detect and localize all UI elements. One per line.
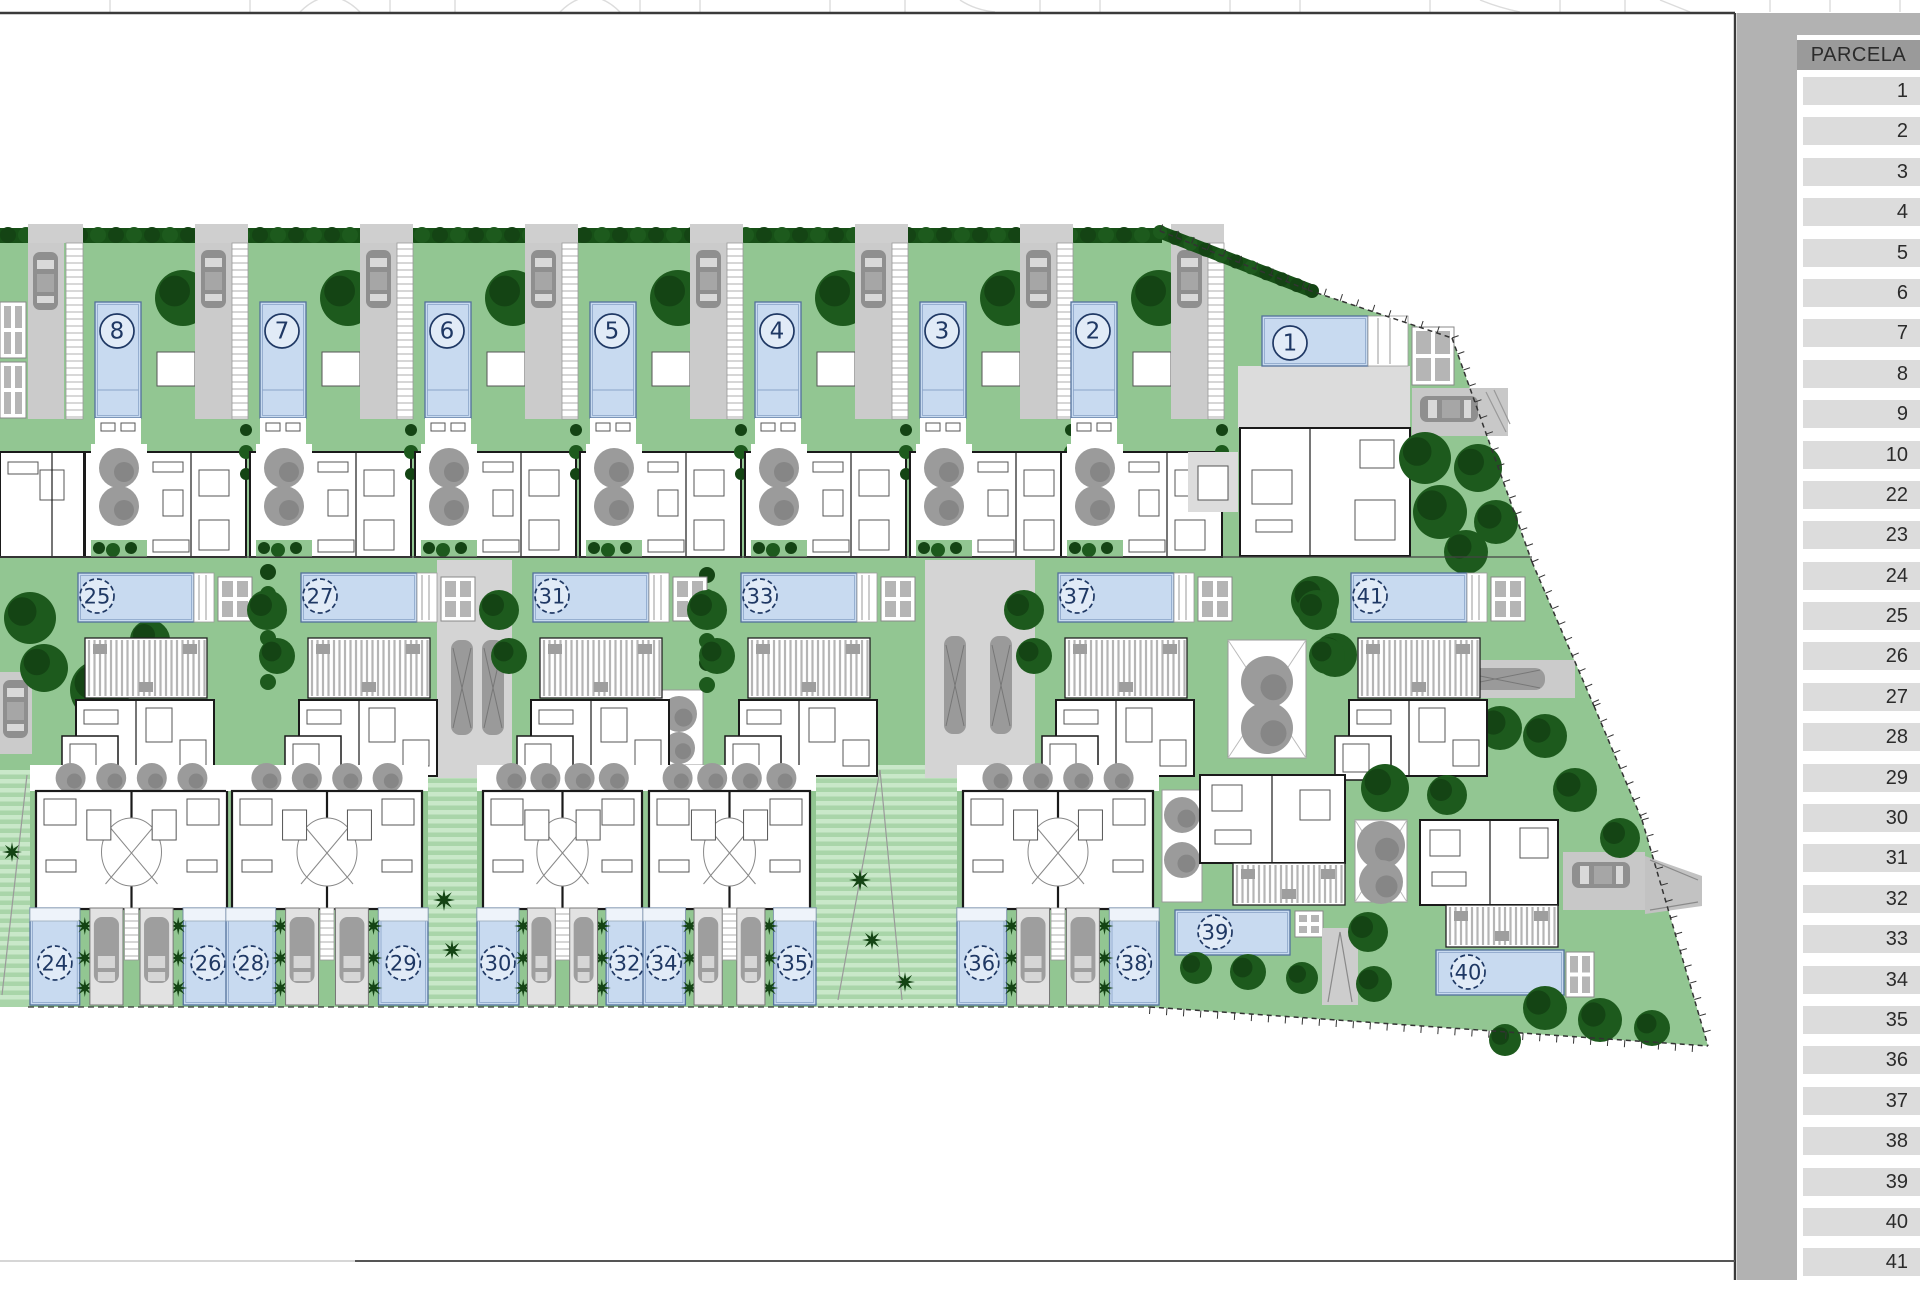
plan-parcel-24[interactable]: 24 bbox=[38, 946, 72, 980]
svg-text:31: 31 bbox=[539, 585, 566, 609]
plan-parcel-33[interactable]: 33 bbox=[743, 579, 777, 613]
plan-parcel-26[interactable]: 26 bbox=[191, 946, 225, 980]
svg-text:38: 38 bbox=[1121, 952, 1148, 976]
svg-text:8: 8 bbox=[110, 319, 125, 345]
parcel-row-41[interactable]: 41 bbox=[1803, 1248, 1920, 1276]
parcel-row-35[interactable]: 35 bbox=[1803, 1006, 1920, 1034]
parcel-row-32[interactable]: 32 bbox=[1803, 885, 1920, 913]
plan-parcel-3[interactable]: 3 bbox=[925, 314, 959, 348]
plan-parcel-40[interactable]: 40 bbox=[1451, 955, 1485, 989]
parcel-row-25[interactable]: 25 bbox=[1803, 602, 1920, 630]
parcel-row-10[interactable]: 10 bbox=[1803, 441, 1920, 469]
svg-text:41: 41 bbox=[1357, 585, 1384, 609]
parcel-row-7[interactable]: 7 bbox=[1803, 319, 1920, 347]
parcel-row-40[interactable]: 40 bbox=[1803, 1208, 1920, 1236]
plan-parcel-36[interactable]: 36 bbox=[965, 946, 999, 980]
svg-text:6: 6 bbox=[440, 319, 455, 345]
plan-parcel-7[interactable]: 7 bbox=[265, 314, 299, 348]
plan-parcel-4[interactable]: 4 bbox=[760, 314, 794, 348]
plan-parcel-34[interactable]: 34 bbox=[647, 946, 681, 980]
plan-parcel-31[interactable]: 31 bbox=[535, 579, 569, 613]
parcel-row-6[interactable]: 6 bbox=[1803, 279, 1920, 307]
parcel-row-22[interactable]: 22 bbox=[1803, 481, 1920, 509]
parcel-table: PARCELA 12345678910222324252627282930313… bbox=[1797, 35, 1920, 1293]
plan-parcel-38[interactable]: 38 bbox=[1117, 946, 1151, 980]
plan-parcel-27[interactable]: 27 bbox=[303, 579, 337, 613]
plan-parcel-28[interactable]: 28 bbox=[234, 946, 268, 980]
svg-text:30: 30 bbox=[485, 952, 512, 976]
svg-text:29: 29 bbox=[390, 952, 417, 976]
parcel-row-5[interactable]: 5 bbox=[1803, 239, 1920, 267]
svg-text:3: 3 bbox=[935, 319, 950, 345]
site-plan-drawing: 8765432125273133374124262829303234353638… bbox=[0, 0, 1920, 1280]
parcel-table-panel: PARCELA 12345678910222324252627282930313… bbox=[1737, 13, 1920, 1280]
plan-parcel-25[interactable]: 25 bbox=[80, 579, 114, 613]
parcel-row-30[interactable]: 30 bbox=[1803, 804, 1920, 832]
plan-parcel-39[interactable]: 39 bbox=[1198, 915, 1232, 949]
parcel-row-33[interactable]: 33 bbox=[1803, 925, 1920, 953]
plan-parcel-37[interactable]: 37 bbox=[1060, 579, 1094, 613]
svg-text:25: 25 bbox=[84, 585, 111, 609]
parcel-row-28[interactable]: 28 bbox=[1803, 723, 1920, 751]
svg-text:39: 39 bbox=[1202, 921, 1229, 945]
svg-text:33: 33 bbox=[747, 585, 774, 609]
svg-text:4: 4 bbox=[770, 319, 785, 345]
svg-text:2: 2 bbox=[1086, 319, 1101, 345]
parcel-row-36[interactable]: 36 bbox=[1803, 1046, 1920, 1074]
svg-text:36: 36 bbox=[968, 952, 995, 976]
plan-parcel-32[interactable]: 32 bbox=[610, 946, 644, 980]
plan-parcel-30[interactable]: 30 bbox=[481, 946, 515, 980]
parcel-row-8[interactable]: 8 bbox=[1803, 360, 1920, 388]
parcel-row-9[interactable]: 9 bbox=[1803, 400, 1920, 428]
plan-parcel-5[interactable]: 5 bbox=[595, 314, 629, 348]
parcel-row-2[interactable]: 2 bbox=[1803, 117, 1920, 145]
parcel-row-29[interactable]: 29 bbox=[1803, 764, 1920, 792]
parcel-row-37[interactable]: 37 bbox=[1803, 1087, 1920, 1115]
parcel-table-header: PARCELA bbox=[1797, 40, 1920, 70]
parcel-row-1[interactable]: 1 bbox=[1803, 77, 1920, 105]
parcel-row-34[interactable]: 34 bbox=[1803, 966, 1920, 994]
svg-text:34: 34 bbox=[651, 952, 678, 976]
parcel-row-23[interactable]: 23 bbox=[1803, 521, 1920, 549]
parcel-row-26[interactable]: 26 bbox=[1803, 642, 1920, 670]
svg-text:37: 37 bbox=[1064, 585, 1091, 609]
plan-parcel-8[interactable]: 8 bbox=[100, 314, 134, 348]
parcel-row-39[interactable]: 39 bbox=[1803, 1168, 1920, 1196]
svg-text:26: 26 bbox=[195, 952, 222, 976]
parcel-row-3[interactable]: 3 bbox=[1803, 158, 1920, 186]
parcel-row-38[interactable]: 38 bbox=[1803, 1127, 1920, 1155]
parcel-row-31[interactable]: 31 bbox=[1803, 844, 1920, 872]
svg-text:1: 1 bbox=[1283, 331, 1298, 357]
plan-parcel-29[interactable]: 29 bbox=[386, 946, 420, 980]
parcel-row-24[interactable]: 24 bbox=[1803, 562, 1920, 590]
svg-text:35: 35 bbox=[781, 952, 808, 976]
svg-text:5: 5 bbox=[605, 319, 620, 345]
plan-parcel-41[interactable]: 41 bbox=[1353, 579, 1387, 613]
plan-parcel-35[interactable]: 35 bbox=[778, 946, 812, 980]
plan-parcel-6[interactable]: 6 bbox=[430, 314, 464, 348]
svg-text:27: 27 bbox=[307, 585, 334, 609]
plan-parcel-1[interactable]: 1 bbox=[1273, 326, 1307, 360]
svg-text:7: 7 bbox=[275, 319, 290, 345]
svg-text:28: 28 bbox=[237, 952, 264, 976]
svg-text:40: 40 bbox=[1455, 961, 1482, 985]
plan-parcel-2[interactable]: 2 bbox=[1076, 314, 1110, 348]
svg-text:24: 24 bbox=[42, 952, 69, 976]
parcel-row-4[interactable]: 4 bbox=[1803, 198, 1920, 226]
parcel-row-27[interactable]: 27 bbox=[1803, 683, 1920, 711]
svg-text:32: 32 bbox=[614, 952, 641, 976]
